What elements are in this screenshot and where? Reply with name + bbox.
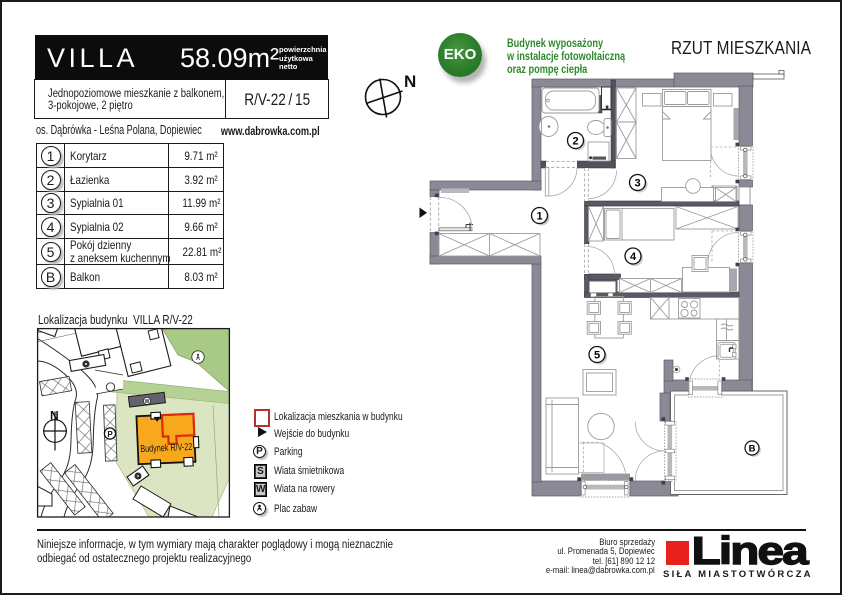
svg-text:P: P	[107, 430, 113, 439]
svg-text:1: 1	[536, 211, 542, 223]
svg-text:Budynek R/V-22: Budynek R/V-22	[140, 441, 193, 455]
svg-text:3: 3	[634, 178, 640, 190]
svg-text:5: 5	[594, 350, 600, 362]
svg-text:B: B	[749, 443, 756, 454]
svg-text:4: 4	[630, 251, 637, 263]
svg-text:W: W	[145, 399, 150, 405]
svg-text:2: 2	[572, 136, 578, 148]
svg-text:N: N	[404, 72, 416, 91]
svg-text:N: N	[50, 409, 59, 423]
